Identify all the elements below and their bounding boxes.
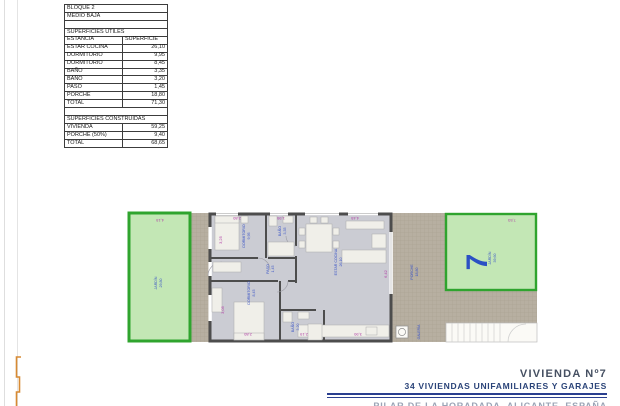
cell-estancia: SUPERFICIES CONSTRUIDAS: [65, 116, 167, 123]
cell-estancia: DORMITORIO: [65, 61, 123, 68]
label-dormitorio2: DORMITORIO: [247, 281, 251, 304]
garden-right-label: JARDÍN: [488, 251, 492, 264]
cell-estancia: VIVIENDA: [65, 124, 123, 131]
cell-superficie: 71,30: [123, 100, 167, 107]
left-porch-tiles: [189, 213, 210, 342]
label-paso: PASO: [266, 264, 270, 274]
cell-estancia: DORMITORIO: [65, 53, 123, 60]
label-estar-cocina: ESTAR COCINA: [334, 248, 338, 275]
table-row: MEDIO BAJA: [65, 12, 167, 20]
table-header-row: ESTANCIASUPERFICIE: [65, 36, 167, 44]
sink-2: [298, 312, 309, 319]
table-row: PASO1,45: [65, 83, 167, 91]
cell-estancia: TOTAL: [65, 100, 123, 107]
table-row: VIVIENDA59,25: [65, 123, 167, 131]
cell-estancia: BAÑO: [65, 76, 123, 83]
dim-bed1-width: 2,80: [232, 216, 241, 221]
cell-superficie: 3,20: [123, 76, 167, 83]
table-row: [65, 107, 167, 115]
dim-garden-right-width: 7,53: [507, 218, 516, 223]
sofa: [342, 250, 386, 263]
cell-superficie: 8,45: [123, 61, 167, 68]
project-title: 34 VIVIENDAS UNIFAMILIARES Y GARAJES: [327, 381, 607, 391]
dining-table: [306, 224, 332, 252]
cell-superficie: 9,95: [123, 53, 167, 60]
cell-superficie: 26,10: [123, 45, 167, 52]
garden-left-area: 29,80: [159, 279, 163, 288]
dim-bed2-depth: 3,05: [220, 305, 225, 314]
area-estar-cocina: 26,10: [339, 258, 343, 267]
cell-estancia: PORCHE: [65, 92, 123, 99]
unit-title: VIVIENDA Nº7: [327, 368, 607, 380]
cell-superficie: 3,35: [123, 69, 167, 76]
wardrobe-1: [213, 262, 241, 272]
title-block: VIVIENDA Nº7 34 VIVIENDAS UNIFAMILIARES …: [327, 368, 607, 406]
cell-estancia: BAÑO: [65, 69, 123, 76]
table-row: TOTAL71,30: [65, 99, 167, 107]
dim-living-width: 4,45: [350, 216, 359, 221]
table-row: SUPERFICIES CONSTRUIDAS: [65, 115, 167, 123]
dim-bath2-width: 2,19: [299, 332, 308, 337]
area-dormitorio1: 9,95: [247, 233, 251, 240]
cell-superficie: SUPERFICIE: [123, 37, 167, 44]
dim-bed1-depth: 3,25: [218, 235, 223, 244]
cell-estancia: ESTANCIA: [65, 37, 123, 44]
stairs: [446, 323, 537, 342]
table-row: BAÑO3,20: [65, 75, 167, 83]
table-row: PORCHE18,80: [65, 91, 167, 99]
cell-estancia: BLOQUE 2: [65, 5, 167, 12]
label-bano1: BAÑO: [277, 226, 282, 236]
label-bano2: BAÑO: [290, 322, 295, 332]
dim-living-depth: 6,42: [383, 269, 388, 278]
toilet-2: [283, 312, 292, 322]
cell-estancia: SUPERFICIES ÚTILES: [65, 29, 167, 36]
table-row: SUPERFICIES ÚTILES: [65, 28, 167, 36]
table-row: [65, 20, 167, 28]
cell-estancia: TOTAL: [65, 140, 123, 147]
area-bano2: 3,20: [296, 324, 300, 331]
tv-bench: [346, 221, 384, 229]
area-dormitorio2: 8,45: [252, 290, 256, 297]
right-terrace-tiles: [446, 290, 537, 323]
galeria-label: GALERÍA: [417, 324, 421, 339]
surfaces-table: BLOQUE 2 MEDIO BAJA SUPERFICIES ÚTILES E…: [64, 4, 168, 148]
house: [208, 212, 393, 342]
table-row: BLOQUE 2: [65, 5, 167, 12]
cell-estancia: MEDIO BAJA: [65, 13, 167, 20]
cell-superficie: 68,65: [123, 140, 167, 147]
cell-estancia: ESTAR COCINA: [65, 45, 123, 52]
garden-right: 7,53 7 JARDÍN 39,60: [446, 214, 536, 290]
area-bano1: 3,35: [283, 228, 287, 235]
dim-bed2-width: 2,80: [243, 332, 252, 337]
garden-left-label: JARDÍN: [154, 276, 158, 289]
cell-superficie: 59,25: [123, 124, 167, 131]
cell-estancia: PASO: [65, 84, 123, 91]
cell-superficie: 1,45: [123, 84, 167, 91]
dim-garden-left-width: 4,15: [155, 218, 164, 223]
cell-superficie: 9,40: [123, 132, 167, 139]
area-paso: 1,45: [271, 266, 275, 273]
table-row: DORMITORIO9,95: [65, 52, 167, 60]
shower-2: [308, 324, 322, 340]
label-dormitorio1: DORMITORIO: [242, 224, 246, 247]
table-row: ESTAR COCINA26,10: [65, 44, 167, 52]
toilet-1: [269, 216, 277, 226]
cell-estancia: PORCHE (50%): [65, 132, 123, 139]
table-row: PORCHE (50%)9,40: [65, 131, 167, 139]
garden-right-area: 39,60: [493, 254, 497, 263]
cell-superficie: 18,80: [123, 92, 167, 99]
project-location: PILAR DE LA HORADADA, ALICANTE, ESPAÑA: [327, 401, 607, 406]
table-row: DORMITORIO8,45: [65, 60, 167, 68]
dim-bath1-width: 1,95: [276, 216, 285, 221]
title-divider: [327, 393, 607, 398]
cell-estancia: [65, 21, 167, 28]
dim-kitchen-width: 3,90: [353, 332, 362, 337]
garden-left: 4,15 JARDÍN 29,80: [129, 213, 190, 341]
table-row: TOTAL68,65: [65, 139, 167, 147]
kitchen-sink: [366, 327, 377, 335]
cell-estancia: [65, 108, 167, 115]
right-porch-tiles: [392, 213, 446, 342]
label-porche: PORCHE: [410, 264, 414, 280]
washing-machine-icon: [396, 326, 408, 338]
area-porche: 18,80: [415, 268, 419, 277]
table-row: BAÑO3,35: [65, 68, 167, 76]
shower-1: [268, 242, 294, 256]
drawing-sheet: 4,15 JARDÍN 29,80 7,53 7 JARDÍN 39,60: [0, 0, 620, 406]
